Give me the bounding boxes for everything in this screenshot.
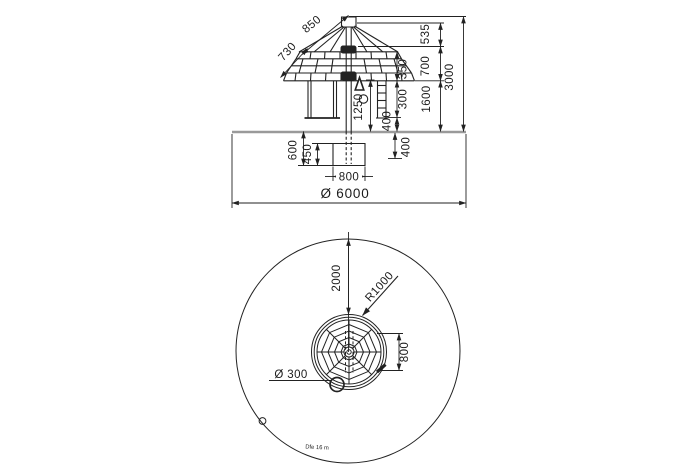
mast-clamps	[341, 46, 357, 81]
dim-535-label: 535	[420, 24, 432, 44]
foundation-block	[333, 132, 365, 166]
dim-3000-label: 3000	[444, 63, 456, 90]
hanging-step	[305, 81, 341, 118]
technical-drawing: 850 730 535 700 3000 350 300 1600 1250 4…	[0, 0, 700, 467]
dim-300-label: 300	[398, 89, 410, 109]
dim-1250-label: 1250	[353, 93, 365, 120]
net-facets	[287, 59, 412, 73]
elevation-dimension-labels: 850 730 535 700 3000 350 300 1600 1250 4…	[276, 14, 456, 201]
dim-700-label: 700	[420, 56, 432, 76]
technical-drawing-page: 850 730 535 700 3000 350 300 1600 1250 4…	[0, 0, 700, 467]
plan-view: 2000 R1000 800 Ø 300 Dfe 16 m	[236, 232, 460, 463]
dim-800-web-label: 800	[399, 342, 411, 362]
dim-350-label: 350	[398, 59, 410, 79]
dim-r1000-label: R1000	[363, 270, 396, 305]
dim-diameter-6000-label: Ø 6000	[320, 186, 369, 201]
dim-450-label: 450	[302, 144, 314, 164]
dim-850-label: 850	[300, 14, 323, 36]
climbing-web	[312, 315, 387, 390]
dim-400-ladder-label: 400	[382, 111, 394, 131]
dim-2000-label: 2000	[331, 264, 343, 291]
safety-area-circle	[236, 239, 460, 463]
dim-diameter-300-label: Ø 300	[274, 369, 307, 381]
dim-800-foundation-label: 800	[339, 172, 359, 184]
elevation-view: 850 730 535 700 3000 350 300 1600 1250 4…	[232, 14, 466, 208]
plan-note: Dfe 16 m	[305, 444, 329, 451]
dim-600-label: 600	[288, 140, 300, 160]
dim-1600-label: 1600	[421, 85, 433, 112]
dim-400-depth-label: 400	[401, 137, 413, 157]
